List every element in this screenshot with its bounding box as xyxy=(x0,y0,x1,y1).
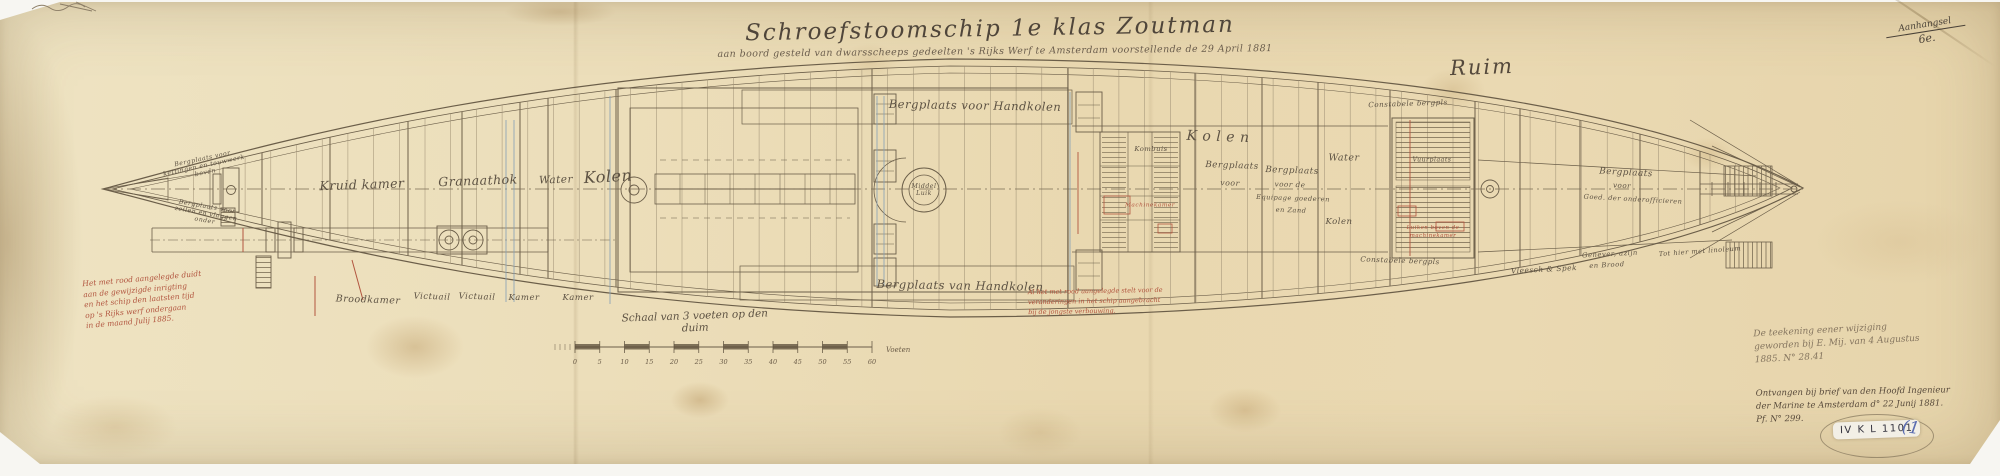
hull-outline xyxy=(103,59,1803,317)
blue-pen-mark: (1 xyxy=(1901,417,1921,439)
red-revision-note-left: Het met rood aangelegde duidt aan de gew… xyxy=(82,269,205,332)
svg-text:0: 0 xyxy=(573,358,577,366)
svg-text:Voeten: Voeten xyxy=(886,346,911,354)
ship-plan-drawing: 051015202530354045505560Voeten xyxy=(0,0,2000,476)
svg-text:40: 40 xyxy=(768,358,777,366)
svg-text:25: 25 xyxy=(694,358,703,366)
svg-text:10: 10 xyxy=(620,358,628,366)
deck-name-label: Ruim xyxy=(1450,54,1515,80)
scale-bar: 051015202530354045505560Voeten xyxy=(555,341,911,366)
scanned-sheet-photo: { "header": { "title": "Schroefstoomschi… xyxy=(0,0,2000,476)
red-ink-accents xyxy=(243,120,1464,316)
svg-text:55: 55 xyxy=(843,358,851,366)
svg-text:20: 20 xyxy=(669,358,678,366)
svg-text:30: 30 xyxy=(719,358,727,366)
svg-text:60: 60 xyxy=(868,358,876,366)
svg-text:45: 45 xyxy=(793,358,802,366)
pencil-scribbles xyxy=(32,2,96,11)
svg-text:15: 15 xyxy=(645,358,653,366)
svg-text:50: 50 xyxy=(818,358,826,366)
svg-text:35: 35 xyxy=(744,358,752,366)
red-legend-note-center: Al het met rood aangelegde stelt voor de… xyxy=(1028,286,1163,318)
svg-text:5: 5 xyxy=(598,358,602,366)
